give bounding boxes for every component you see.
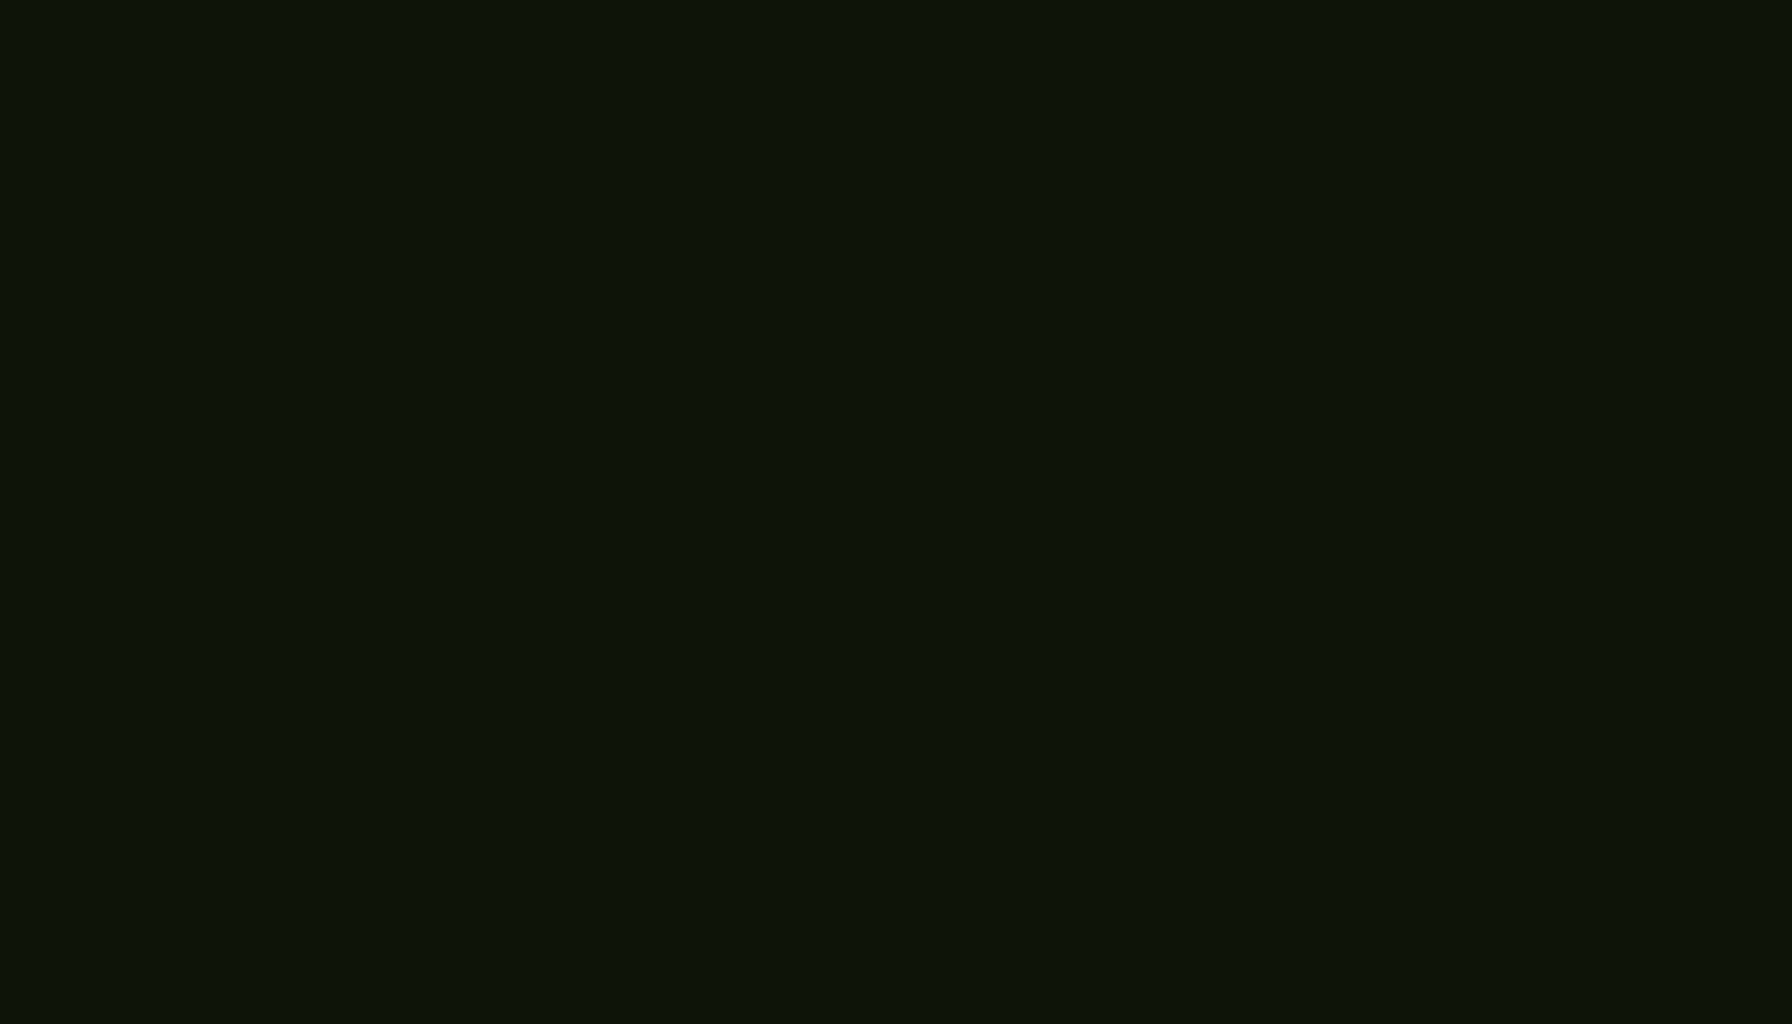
aerial-jungle-condo-rendering	[0, 0, 1792, 1024]
rendering-stage	[0, 0, 1792, 1024]
